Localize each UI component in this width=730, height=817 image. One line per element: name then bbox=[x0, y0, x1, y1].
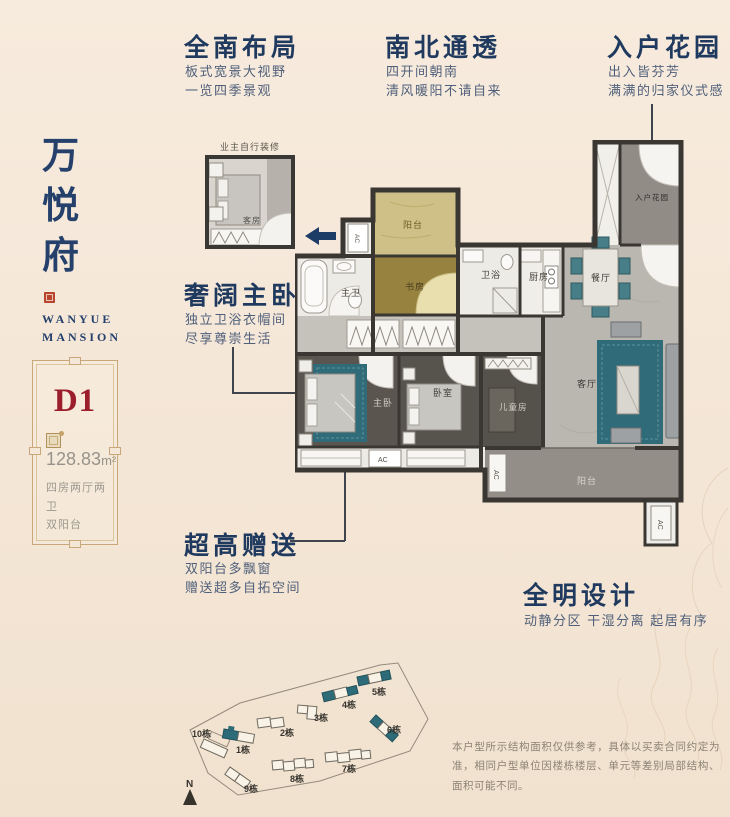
callout-bright-line1: 动静分区 干湿分离 起居有序 bbox=[524, 612, 708, 631]
callout-south-layout-line2: 一览四季景观 bbox=[185, 82, 287, 101]
brand-name-en: WANYUE MANSION bbox=[42, 310, 121, 346]
connector-master-vertical bbox=[232, 347, 234, 393]
inset-guest-room-plan: 客房 bbox=[203, 153, 297, 251]
callout-bonus-line2: 赠送超多自拓空间 bbox=[185, 579, 301, 598]
callout-south-layout-title: 全南布局 bbox=[184, 28, 300, 64]
floor-plan: 阳台 书房 主卫 卫浴 厨房 餐厅 入户花园 主卧 卧室 儿童房 客厅 阳台 A… bbox=[295, 140, 690, 550]
armchair bbox=[611, 428, 641, 443]
brand-char-2: 悦 bbox=[42, 188, 79, 225]
callout-south-layout-line1: 板式宽景大视野 bbox=[185, 63, 287, 82]
callout-master-suite-line1: 独立卫浴衣帽间 bbox=[185, 311, 287, 330]
wardrobe bbox=[403, 320, 455, 348]
building-labels: 1栋 2栋 3栋 4栋 5栋 6栋 7栋 8栋 9栋 10栋 bbox=[192, 686, 401, 794]
pillow bbox=[409, 388, 419, 405]
callout-south-layout-sub: 板式宽景大视野 一览四季景观 bbox=[185, 63, 287, 101]
building-1 bbox=[222, 725, 255, 743]
room-label-dining: 餐厅 bbox=[591, 272, 611, 283]
unit-spec-line2: 双阳台 bbox=[46, 516, 117, 535]
callout-entry-garden-title: 入户花园 bbox=[607, 28, 723, 64]
room-label-balcony-bottom: 阳台 bbox=[577, 475, 597, 486]
building-label-5: 5栋 bbox=[372, 686, 386, 697]
room-label-balcony-top: 阳台 bbox=[403, 219, 423, 230]
building-8 bbox=[272, 757, 314, 772]
callout-bonus-sub: 双阳台多飘窗 赠送超多自拓空间 bbox=[185, 560, 301, 598]
pillow bbox=[307, 378, 317, 400]
pillow bbox=[307, 404, 317, 426]
brand-char-1: 万 bbox=[42, 138, 79, 175]
brand-seal-icon bbox=[44, 292, 55, 303]
sink bbox=[463, 250, 483, 262]
site-plan: 1栋 2栋 3栋 4栋 5栋 6栋 7栋 8栋 9栋 10栋 N bbox=[180, 655, 442, 813]
dining-chair bbox=[571, 283, 582, 299]
dining-chair bbox=[619, 283, 630, 299]
callout-bonus-line1: 双阳台多飘窗 bbox=[185, 560, 301, 579]
ac-label: AC bbox=[656, 520, 663, 530]
dining-chair bbox=[571, 258, 582, 274]
disclaimer-text: 本户型所示结构面积仅供参考，具体以买卖合同约定为准，相同户型单位因楼栋楼层、单元… bbox=[452, 738, 720, 796]
north-label: N bbox=[186, 779, 193, 790]
dining-chair bbox=[619, 258, 630, 274]
nightstand bbox=[299, 434, 312, 446]
ac-label: AC bbox=[492, 470, 499, 480]
building-label-9: 9栋 bbox=[244, 783, 258, 794]
callout-bright-sub: 动静分区 干湿分离 起居有序 bbox=[524, 612, 708, 631]
unit-area: 128.83m² bbox=[46, 449, 116, 470]
room-label-master-bath: 主卫 bbox=[341, 287, 361, 298]
pillow bbox=[409, 408, 419, 425]
nightstand bbox=[403, 432, 415, 444]
callout-master-suite-title: 奢阔主卧 bbox=[184, 276, 300, 312]
unit-area-value: 128.83 bbox=[46, 449, 101, 469]
balcony-bottom-floor bbox=[485, 448, 681, 500]
inset-pillow bbox=[218, 179, 228, 197]
brand-char-3: 府 bbox=[42, 238, 79, 275]
callout-bonus-title: 超高赠送 bbox=[184, 526, 300, 562]
building-label-6: 6栋 bbox=[387, 724, 401, 735]
building-label-3: 3栋 bbox=[314, 712, 328, 723]
card-ornament bbox=[69, 357, 81, 365]
toilet bbox=[501, 255, 513, 270]
brand-vertical-title: 万 悦 府 bbox=[42, 138, 79, 275]
inset-room-label: 客房 bbox=[243, 215, 261, 225]
brand-name-en-line2: MANSION bbox=[42, 328, 121, 346]
dining-chair bbox=[592, 306, 609, 317]
building-7 bbox=[325, 748, 371, 764]
callout-entry-garden-sub: 出入皆芬芳 满满的归家仪式感 bbox=[608, 63, 724, 101]
callout-ventilation-title: 南北通透 bbox=[385, 28, 501, 64]
building-label-1: 1栋 bbox=[236, 744, 250, 755]
north-arrow-icon bbox=[183, 789, 197, 805]
unit-area-unit: m² bbox=[101, 453, 116, 468]
ac-label: AC bbox=[353, 234, 360, 243]
building-label-7: 7栋 bbox=[342, 763, 356, 774]
callout-master-suite-sub: 独立卫浴衣帽间 尽享尊崇生活 bbox=[185, 311, 287, 349]
sofa bbox=[666, 344, 680, 438]
room-label-study: 书房 bbox=[405, 281, 425, 292]
nightstand bbox=[299, 360, 312, 372]
callout-entry-garden-line1: 出入皆芬芳 bbox=[608, 63, 724, 82]
unit-spec-line1: 四房两厅两卫 bbox=[46, 479, 117, 516]
inset-caption: 业主自行装修 bbox=[203, 140, 297, 153]
building-label-2: 2栋 bbox=[280, 727, 294, 738]
room-label-kitchen: 厨房 bbox=[529, 271, 549, 282]
inset-fixture bbox=[209, 163, 223, 177]
callout-bright-title: 全明设计 bbox=[523, 576, 639, 612]
callout-master-suite-line2: 尽享尊崇生活 bbox=[185, 330, 287, 349]
building-5 bbox=[357, 670, 391, 686]
callout-ventilation-line2: 清风暖阳不请自来 bbox=[386, 82, 502, 101]
room-label-living: 客厅 bbox=[577, 378, 597, 389]
card-ornament bbox=[69, 540, 81, 548]
area-seal-icon bbox=[46, 433, 61, 448]
unit-card: D1 128.83m² 四房两厅两卫 双阳台 bbox=[32, 360, 118, 545]
room-label-kids-room: 儿童房 bbox=[499, 402, 528, 412]
building-label-8: 8栋 bbox=[290, 773, 304, 784]
callout-ventilation-sub: 四开间朝南 清风暖阳不请自来 bbox=[386, 63, 502, 101]
room-label-bedroom: 卧室 bbox=[433, 387, 453, 398]
room-label-bath: 卫浴 bbox=[481, 270, 501, 280]
nightstand bbox=[403, 368, 415, 380]
unit-spec: 四房两厅两卫 双阳台 bbox=[46, 479, 117, 535]
room-label-master-bedroom: 主卧 bbox=[373, 397, 393, 408]
unit-code: D1 bbox=[33, 383, 117, 420]
callout-ventilation-line1: 四开间朝南 bbox=[386, 63, 502, 82]
brand-name-en-line1: WANYUE bbox=[42, 310, 121, 328]
callout-entry-garden-line2: 满满的归家仪式感 bbox=[608, 82, 724, 101]
inset-fixture bbox=[209, 207, 223, 221]
armchair bbox=[611, 322, 641, 337]
sink bbox=[333, 260, 355, 273]
building-label-4: 4栋 bbox=[342, 699, 356, 710]
room-label-entry-garden: 入户花园 bbox=[635, 192, 669, 202]
card-ornament bbox=[29, 447, 41, 455]
ac-label: AC bbox=[378, 457, 388, 464]
building-label-10: 10栋 bbox=[192, 728, 211, 739]
